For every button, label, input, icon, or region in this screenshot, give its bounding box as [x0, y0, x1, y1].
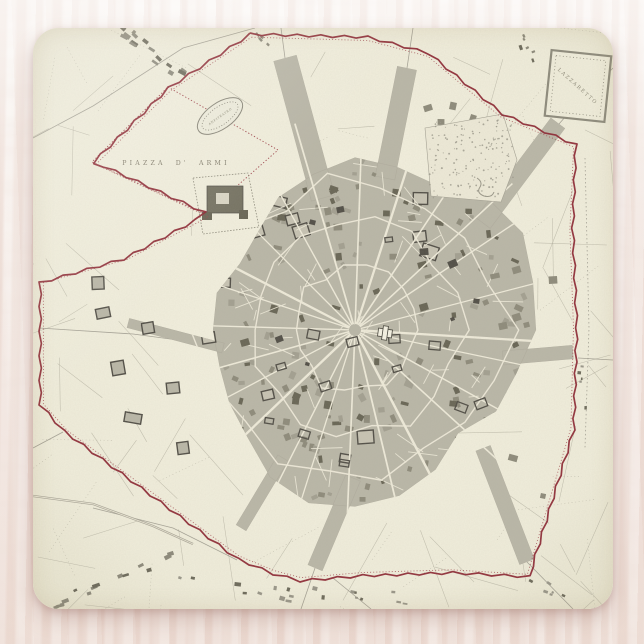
vintage-map-of-milan: ANFITEATRO LAZZARETTO PIAZZA D' ARMI — [33, 28, 613, 609]
glass-coaster: ANFITEATRO LAZZARETTO PIAZZA D' ARMI — [33, 28, 613, 609]
paper-grain — [33, 28, 613, 609]
product-photo-background: ANFITEATRO LAZZARETTO PIAZZA D' ARMI — [0, 0, 644, 644]
